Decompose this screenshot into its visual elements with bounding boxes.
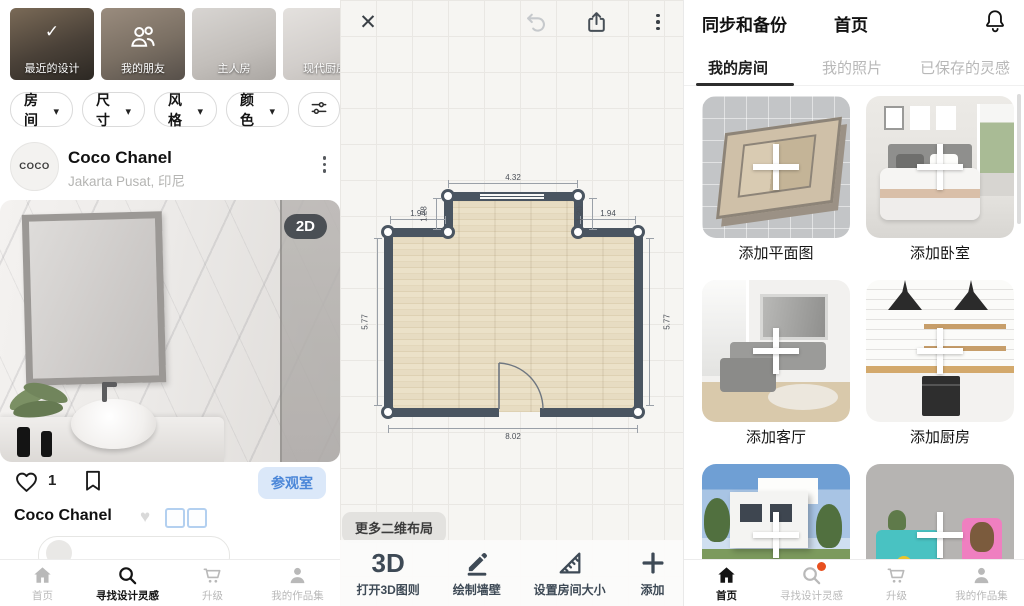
floorplan-card-image <box>702 96 850 238</box>
decor-window <box>977 104 1014 196</box>
decor-teddy-bear <box>970 522 994 552</box>
dimension-top-width: 4.32 <box>448 183 578 184</box>
scrollbar[interactable] <box>1017 94 1021 224</box>
story-modern-kitchen[interactable]: 现代厨房 <box>283 8 340 80</box>
floorplan-editor-panel[interactable]: 4.32 1.94 1.94 1.28 1.20 5.77 5.77 8.02 <box>340 0 683 606</box>
author-name[interactable]: Coco Chanel <box>68 148 172 168</box>
add-item-button[interactable]: 添加 <box>639 548 667 598</box>
corner-node[interactable] <box>381 405 395 419</box>
corner-node[interactable] <box>381 225 395 239</box>
corner-node[interactable] <box>631 405 645 419</box>
decor-faucet <box>102 382 107 402</box>
home-tabs: 我的房间 我的照片 已保存的灵感 <box>684 48 1024 86</box>
dimension-right-step: 1.94 <box>580 219 636 220</box>
nav-label: 我的作品集 <box>955 588 1008 603</box>
bell-icon[interactable] <box>982 8 1008 34</box>
nav-label: 寻找设计灵感 <box>96 588 159 603</box>
home-bottom-nav: 首页 寻找设计灵感 升级 我的作品集 <box>684 559 1024 606</box>
nav-label: 首页 <box>716 588 737 603</box>
nav-upgrade[interactable]: 升级 <box>170 560 255 606</box>
tool-label: 打开3D图则 <box>356 581 419 598</box>
decor-oven <box>922 376 960 416</box>
filter-chip-style[interactable]: 风格 <box>154 92 217 127</box>
decor-frames <box>884 106 904 130</box>
editor-toolbar: 3D 打开3D图则 绘制墙壁 设置房间大小 添加 <box>340 540 683 606</box>
nav-find-inspiration[interactable]: 寻找设计灵感 <box>769 560 854 606</box>
more-2d-layouts-button[interactable]: 更多二维布局 <box>342 512 446 543</box>
card-label: 添加平面图 <box>702 242 850 263</box>
wall-bottom-left[interactable] <box>384 408 500 417</box>
card-label: 添加客厅 <box>702 426 850 447</box>
card-label: 添加厨房 <box>866 426 1014 447</box>
chip-label: 颜色 <box>240 90 265 130</box>
door[interactable] <box>497 360 545 410</box>
post-action-row: 1 参观室 <box>0 464 340 502</box>
bedroom-card-image <box>866 96 1014 238</box>
set-room-size-button[interactable]: 设置房间大小 <box>534 548 606 598</box>
set-square-icon <box>556 548 584 578</box>
story-label: 现代厨房 <box>283 60 340 76</box>
corner-node[interactable] <box>441 225 455 239</box>
dimension-bottom-width: 8.02 <box>388 428 638 429</box>
caption-author[interactable]: Coco Chanel <box>14 507 112 525</box>
wall-right[interactable] <box>634 228 643 417</box>
avatar[interactable]: COCO <box>10 142 59 191</box>
cart-icon <box>885 564 908 587</box>
chevron-down-icon <box>53 102 59 118</box>
search-icon <box>116 564 139 587</box>
wall-left[interactable] <box>384 228 393 417</box>
decor-bottle <box>17 427 30 457</box>
livingroom-card-image <box>702 280 850 422</box>
nav-my-projects[interactable]: 我的作品集 <box>939 560 1024 606</box>
add-plus-icon <box>917 512 963 558</box>
chip-label: 尺寸 <box>96 90 121 130</box>
home-icon <box>715 564 738 587</box>
decor-rug <box>768 384 838 410</box>
tool-label: 设置房间大小 <box>534 581 606 598</box>
dimension-left-height: 5.77 <box>377 238 378 406</box>
nav-label: 首页 <box>32 588 53 603</box>
cart-icon <box>201 564 224 587</box>
story-my-friends[interactable]: 我的朋友 <box>101 8 185 80</box>
decor-sink <box>71 399 156 449</box>
nav-label: 升级 <box>202 588 223 603</box>
feed-panel: 最近的设计 我的朋友 主人房 现代厨房 房间 尺寸 <box>0 0 340 606</box>
nav-label: 我的作品集 <box>271 588 324 603</box>
home-header: 同步和备份 首页 <box>684 0 1024 44</box>
app-root: 最近的设计 我的朋友 主人房 现代厨房 房间 尺寸 <box>0 0 1024 606</box>
bookmark-icon[interactable] <box>80 468 106 494</box>
chevron-down-icon <box>197 102 203 118</box>
filter-chip-row: 房间 尺寸 风格 颜色 <box>10 92 340 127</box>
active-tab-underline <box>696 83 794 86</box>
view-mode-badge: 2D <box>284 214 327 239</box>
nav-label: 升级 <box>886 588 907 603</box>
nav-my-projects[interactable]: 我的作品集 <box>255 560 340 606</box>
nav-home[interactable]: 首页 <box>0 560 85 606</box>
dimension-left-step: 1.94 <box>390 219 446 220</box>
chip-label: 房间 <box>24 90 49 130</box>
story-label: 我的朋友 <box>101 60 185 76</box>
add-plus-icon <box>917 144 963 190</box>
3d-text-icon: 3D <box>372 548 405 578</box>
people-icon <box>101 22 185 52</box>
corner-node[interactable] <box>571 225 585 239</box>
chip-label: 风格 <box>168 90 193 130</box>
decor-mirror <box>22 211 166 386</box>
author-location: Jakarta Pusat, 印尼 <box>68 170 185 190</box>
tool-label: 绘制墙壁 <box>453 581 501 598</box>
decor-bottle <box>41 431 52 457</box>
corner-node[interactable] <box>631 225 645 239</box>
dimension-right-rise: 1.20 <box>592 198 593 230</box>
corner-node[interactable] <box>571 189 585 203</box>
decor-shower-glass <box>280 200 340 462</box>
add-plus-icon <box>753 144 799 190</box>
add-plus-icon <box>917 328 963 374</box>
story-label: 主人房 <box>192 60 276 76</box>
dimension-right-height: 5.77 <box>649 238 650 406</box>
story-master-room[interactable]: 主人房 <box>192 8 276 80</box>
post-caption-row: Coco Chanel <box>0 506 340 530</box>
tool-label: 添加 <box>641 581 665 598</box>
filter-chip-size[interactable]: 尺寸 <box>82 92 145 127</box>
like-count: 1 <box>48 472 56 489</box>
chevron-down-icon <box>125 102 131 118</box>
post-author-row: COCO Coco Chanel Jakarta Pusat, 印尼 <box>0 138 340 196</box>
open-3d-view-button[interactable]: 3D 打开3D图则 <box>356 548 419 598</box>
emoji-placeholder-icon <box>187 508 207 528</box>
post-image-bathroom[interactable]: 2D <box>0 200 340 462</box>
tab-my-rooms[interactable]: 我的房间 <box>708 57 768 78</box>
filter-chip-room[interactable]: 房间 <box>10 92 73 127</box>
emoji-placeholder-icon <box>165 508 185 528</box>
filter-chip-color[interactable]: 颜色 <box>226 92 289 127</box>
story-recent-designs[interactable]: 最近的设计 <box>10 8 94 80</box>
like-heart-icon[interactable] <box>13 468 40 495</box>
filter-settings-button[interactable] <box>298 92 340 127</box>
gray-heart-icon <box>140 507 150 527</box>
wall-bottom-right[interactable] <box>540 408 643 417</box>
search-icon <box>800 564 823 587</box>
page-title: 首页 <box>834 11 868 36</box>
story-label: 最近的设计 <box>10 60 94 76</box>
notification-dot <box>817 562 826 571</box>
person-icon <box>286 564 309 587</box>
decor-plant <box>3 385 73 431</box>
kitchen-card-image <box>866 280 1014 422</box>
nav-label: 寻找设计灵感 <box>780 588 843 603</box>
home-icon <box>31 564 54 587</box>
chevron-down-icon <box>269 102 275 118</box>
post-menu-button[interactable] <box>323 156 327 173</box>
nav-home[interactable]: 首页 <box>684 560 769 606</box>
tab-saved-inspiration[interactable]: 已保存的灵感 <box>920 57 1010 78</box>
dimension-left-rise: 1.28 <box>436 198 437 230</box>
add-plus-icon <box>753 328 799 374</box>
check-icon <box>45 22 59 42</box>
decor-trees <box>704 498 730 542</box>
feed-bottom-nav: 首页 寻找设计灵感 升级 我的作品集 <box>0 559 340 606</box>
card-label: 添加卧室 <box>866 242 1014 263</box>
plus-icon <box>639 548 667 578</box>
sync-backup-button[interactable]: 同步和备份 <box>702 11 787 36</box>
person-icon <box>970 564 993 587</box>
home-panel: 同步和备份 首页 我的房间 我的照片 已保存的灵感 添加平面图 <box>683 0 1024 606</box>
nav-upgrade[interactable]: 升级 <box>854 560 939 606</box>
visit-room-button[interactable]: 参观室 <box>258 467 326 499</box>
story-row: 最近的设计 我的朋友 主人房 现代厨房 <box>0 8 340 82</box>
nav-find-inspiration[interactable]: 寻找设计灵感 <box>85 560 170 606</box>
pencil-icon <box>463 548 491 578</box>
tab-my-photos[interactable]: 我的照片 <box>822 57 882 78</box>
corner-node[interactable] <box>441 189 455 203</box>
tune-sliders-icon <box>309 98 329 121</box>
window-top[interactable] <box>480 192 544 201</box>
draw-walls-button[interactable]: 绘制墙壁 <box>453 548 501 598</box>
decor-plant <box>888 510 906 530</box>
add-plus-icon <box>753 512 799 558</box>
